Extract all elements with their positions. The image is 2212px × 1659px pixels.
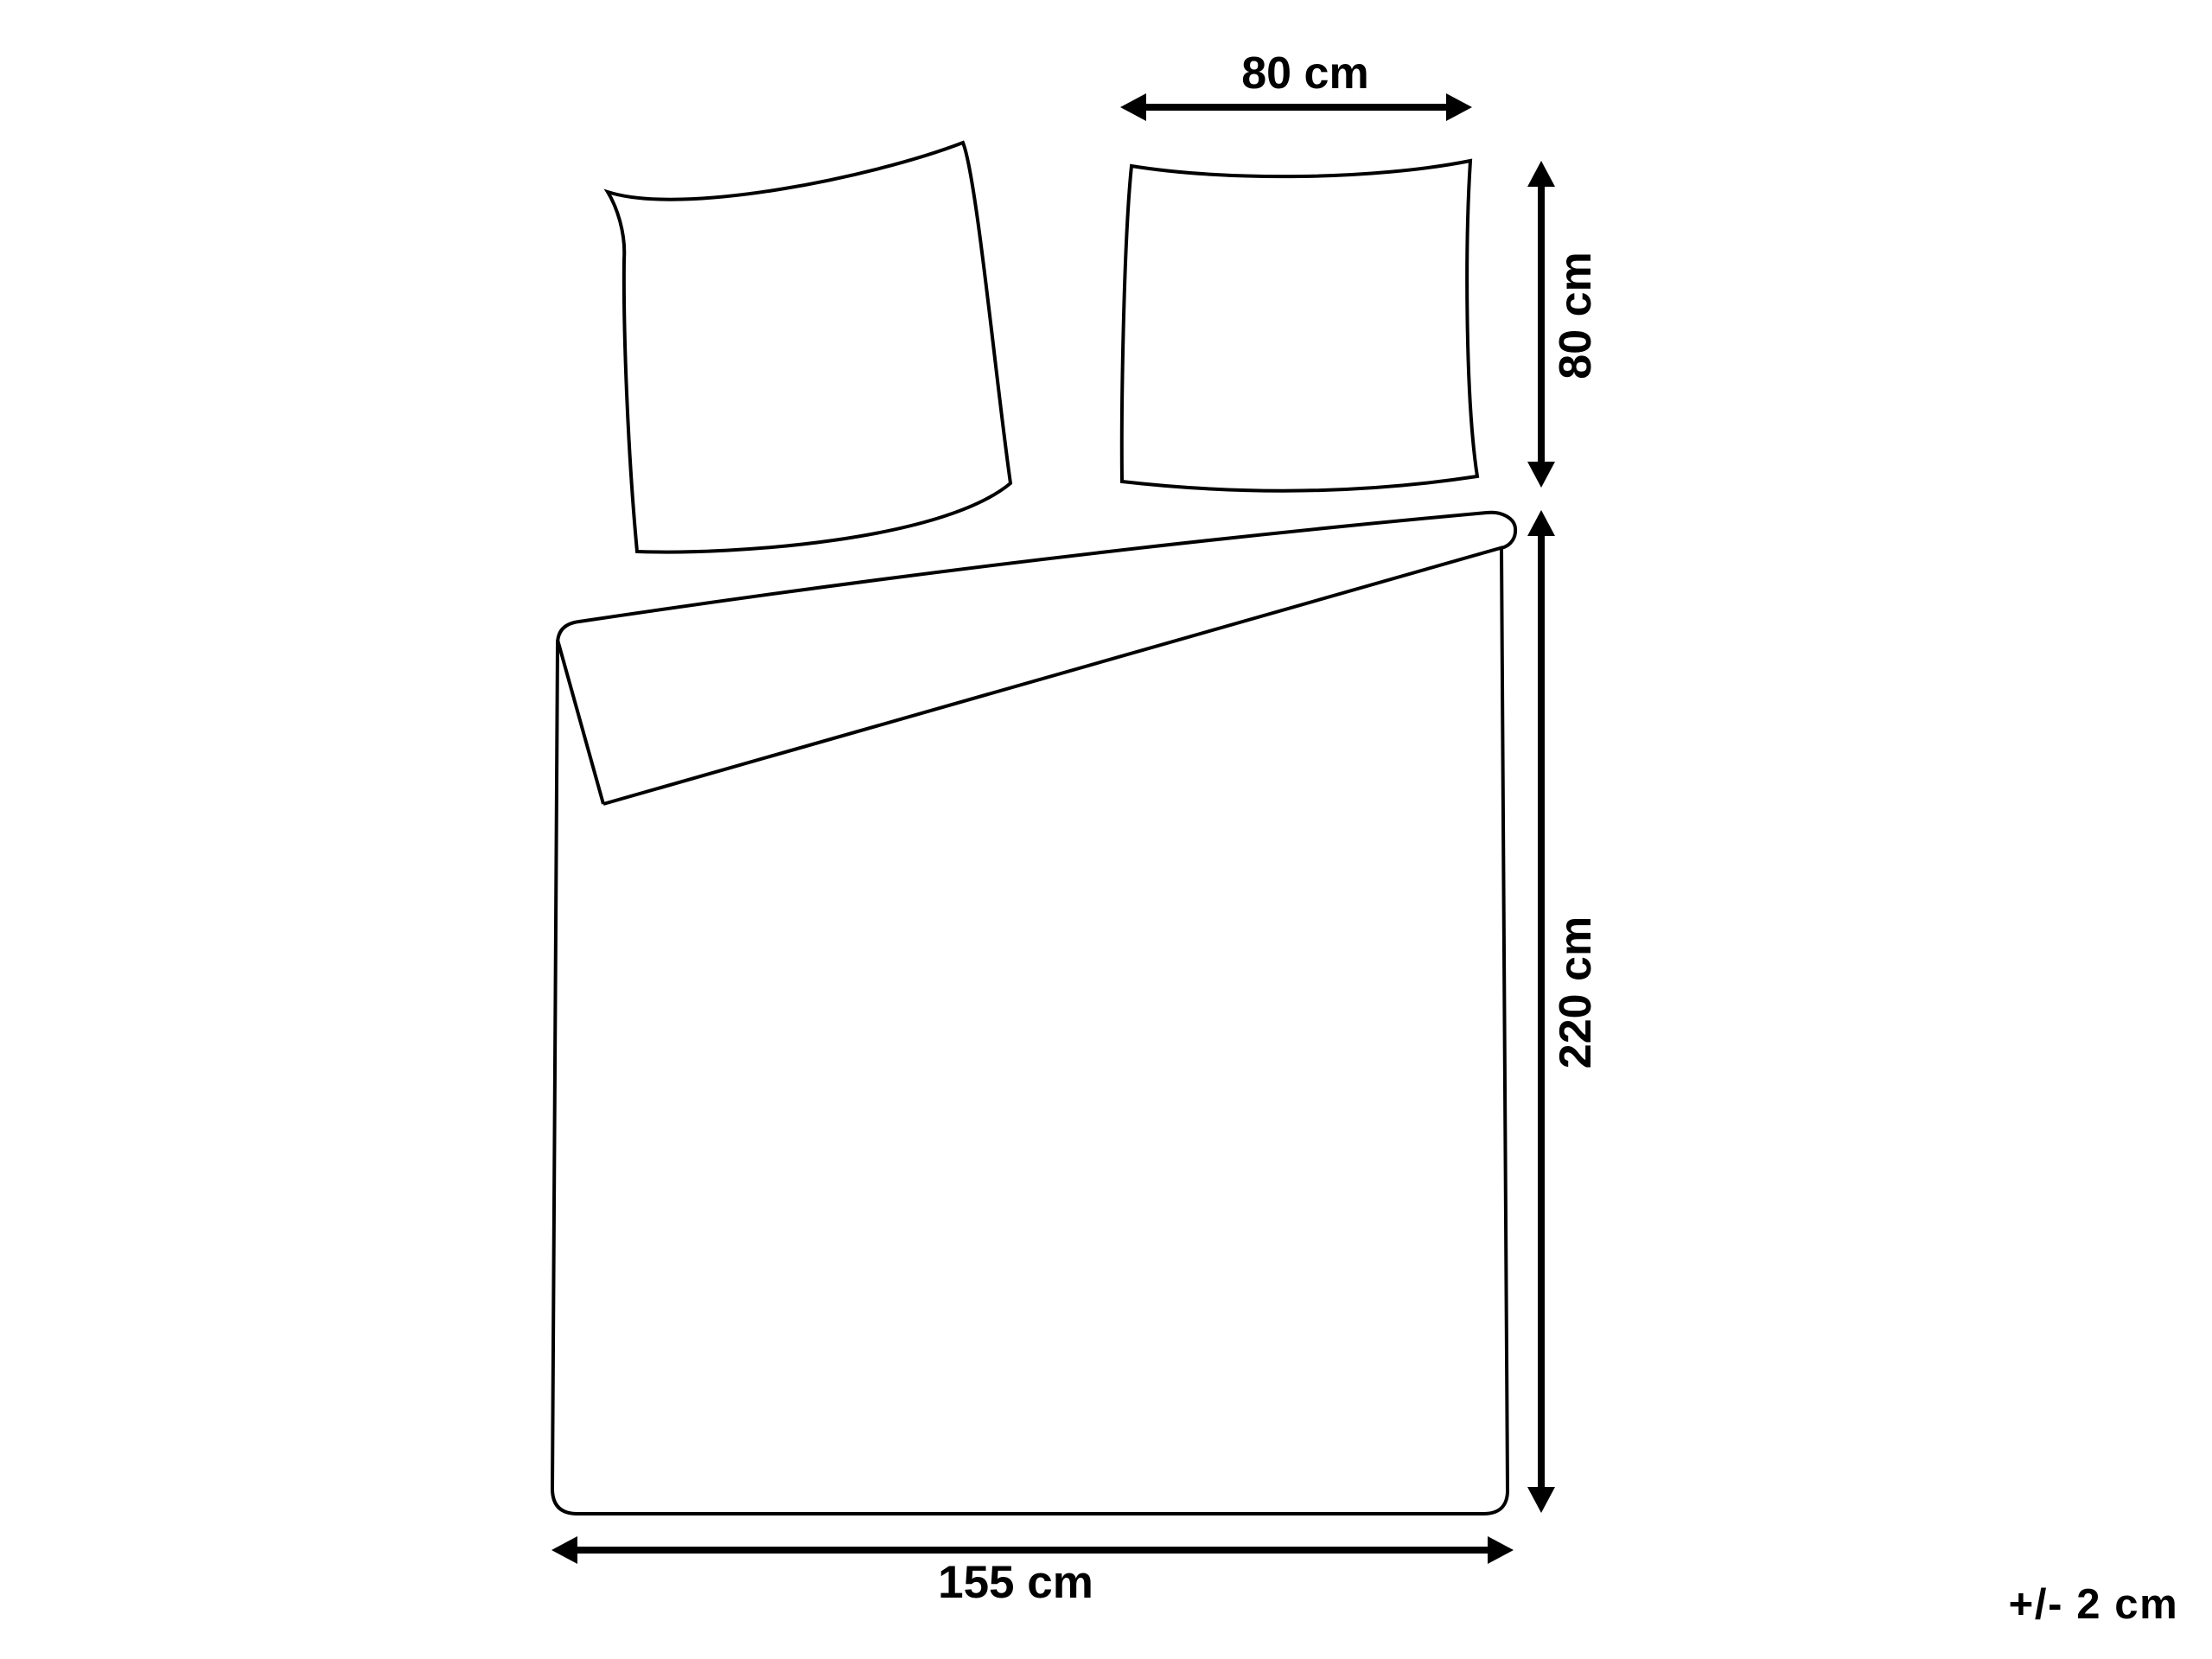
svg-text:220 cm: 220 cm [1551,916,1601,1069]
svg-text:+/- 2 cm: +/- 2 cm [2009,1581,2179,1628]
svg-text:155 cm: 155 cm [938,1557,1093,1608]
svg-text:80 cm: 80 cm [1551,252,1601,379]
svg-text:80 cm: 80 cm [1241,48,1368,99]
